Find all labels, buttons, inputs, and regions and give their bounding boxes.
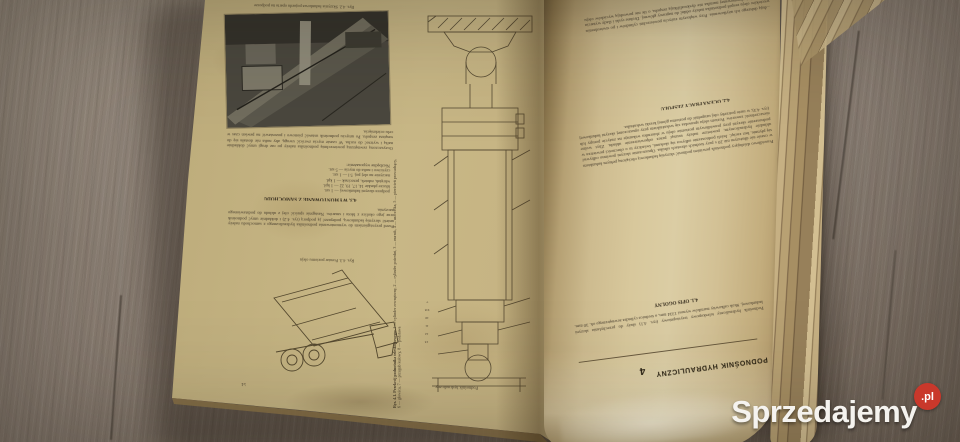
photo-of-open-manual: Rys. 4.2. Skrzynia ładunkowa pojazdu opa… bbox=[0, 0, 960, 442]
watermark-pl-badge: .pl bbox=[914, 383, 941, 410]
photo-vignette bbox=[0, 0, 960, 442]
watermark-brand-text: Sprzedajemy bbox=[731, 394, 917, 430]
